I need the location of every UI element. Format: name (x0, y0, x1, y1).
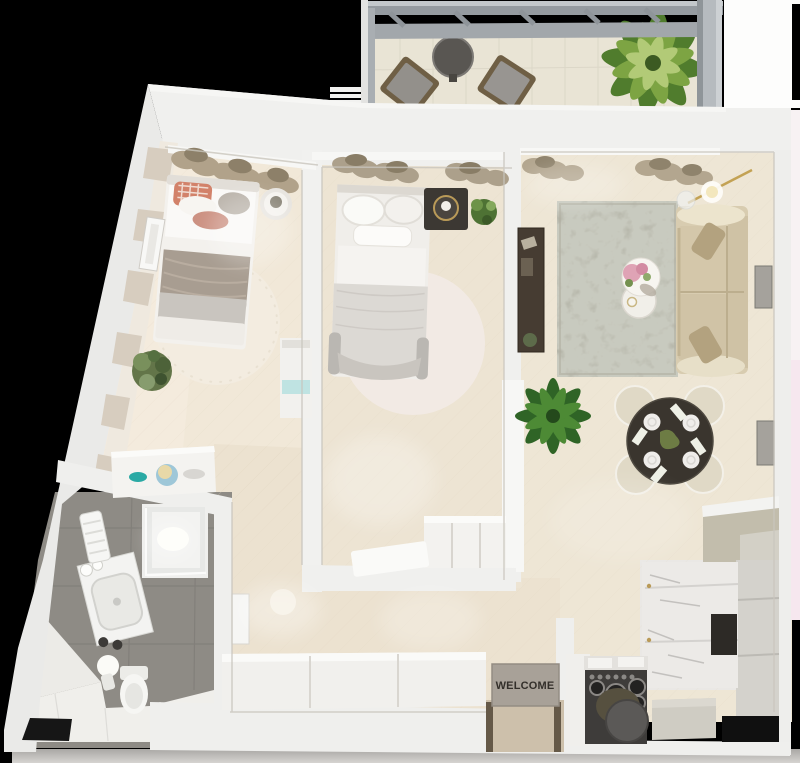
svg-text:WELCOME: WELCOME (496, 680, 555, 692)
